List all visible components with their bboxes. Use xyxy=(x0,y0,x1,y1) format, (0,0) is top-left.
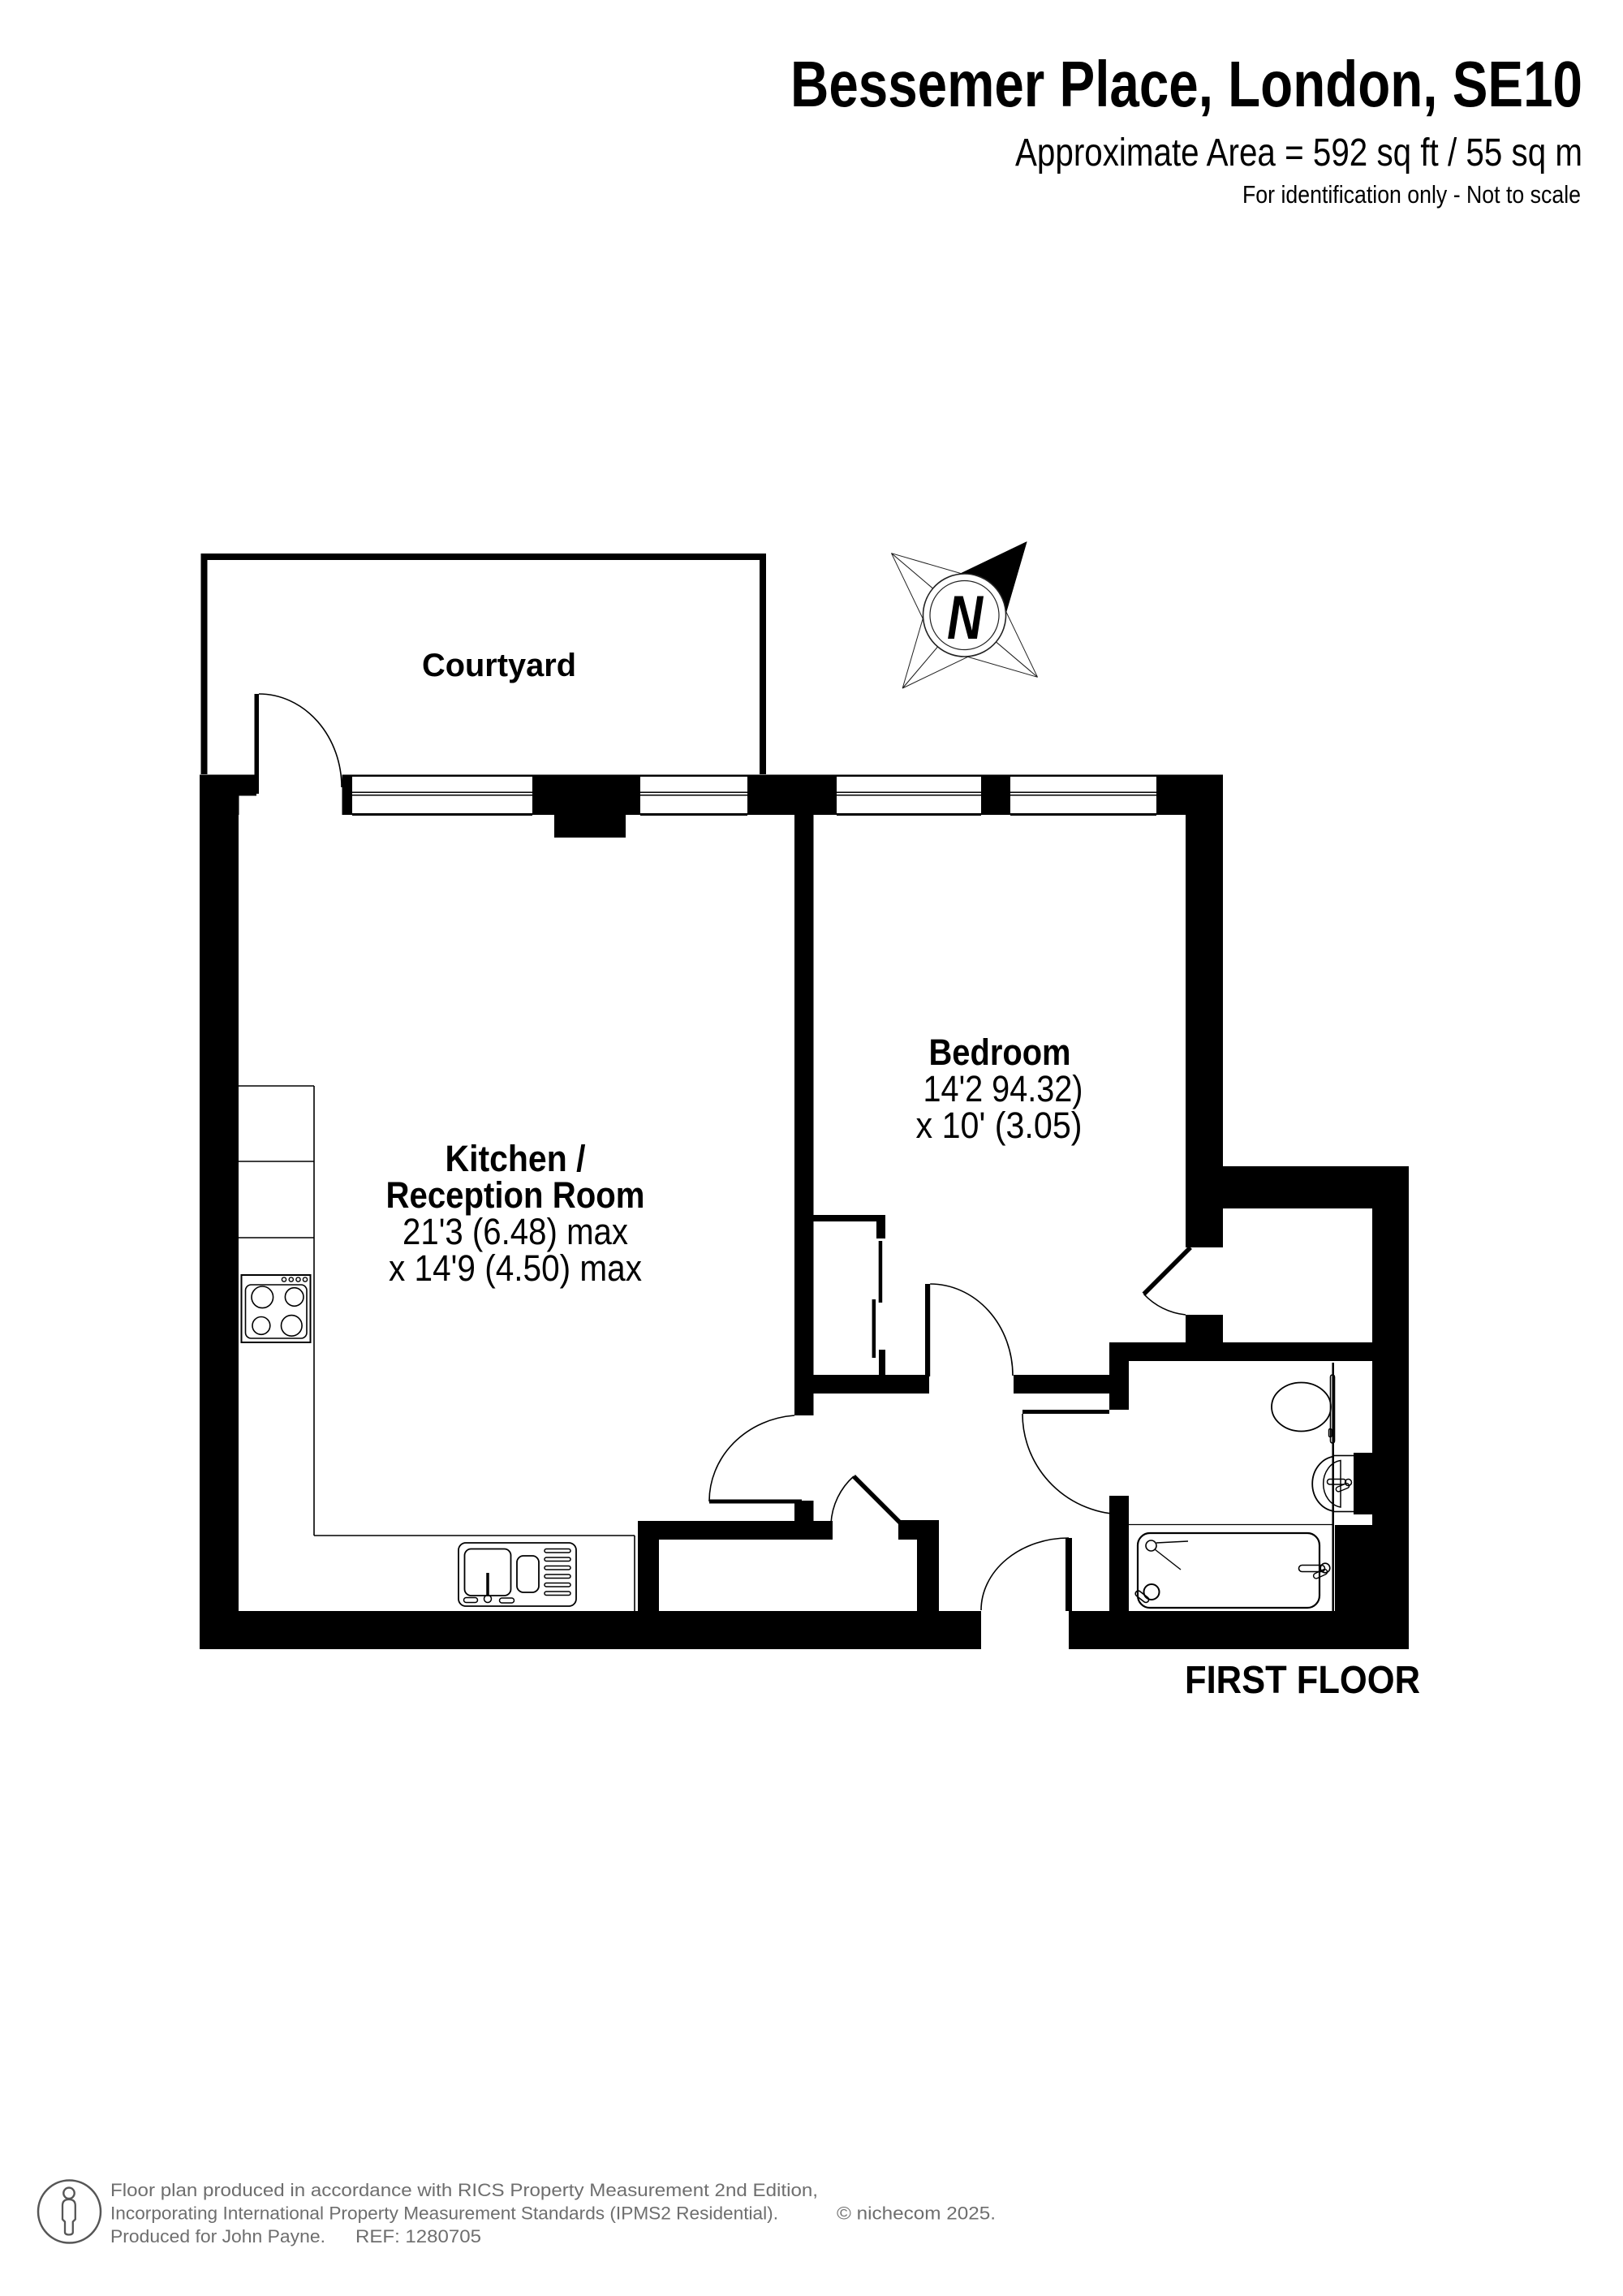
svg-text:REF: 1280705: REF: 1280705 xyxy=(355,2226,481,2246)
svg-text:For identification only - Not: For identification only - Not to scale xyxy=(1242,180,1581,209)
svg-text:Incorporating International Pr: Incorporating International Property Mea… xyxy=(110,2203,778,2224)
svg-text:Floor plan produced in accorda: Floor plan produced in accordance with R… xyxy=(110,2180,818,2200)
svg-text:© nichecom 2025.: © nichecom 2025. xyxy=(837,2203,996,2224)
svg-text:14'2 94.32): 14'2 94.32) xyxy=(923,1068,1083,1109)
svg-text:x 14'9 (4.50) max: x 14'9 (4.50) max xyxy=(389,1247,642,1289)
svg-text:FIRST FLOOR: FIRST FLOOR xyxy=(1185,1659,1420,1702)
svg-text:21'3 (6.48) max: 21'3 (6.48) max xyxy=(403,1211,628,1252)
svg-text:Bedroom: Bedroom xyxy=(929,1032,1071,1073)
svg-text:Courtyard: Courtyard xyxy=(422,648,576,683)
svg-text:Kitchen /: Kitchen / xyxy=(446,1138,586,1179)
svg-text:Bessemer Place, London, SE10: Bessemer Place, London, SE10 xyxy=(790,48,1582,120)
svg-text:Reception Room: Reception Room xyxy=(386,1174,645,1216)
svg-text:Produced for John Payne.: Produced for John Payne. xyxy=(110,2226,325,2246)
svg-text:x 10' (3.05): x 10' (3.05) xyxy=(916,1105,1083,1146)
svg-text:Approximate Area = 592 sq ft /: Approximate Area = 592 sq ft / 55 sq m xyxy=(1015,131,1582,174)
svg-text:N: N xyxy=(947,584,984,653)
